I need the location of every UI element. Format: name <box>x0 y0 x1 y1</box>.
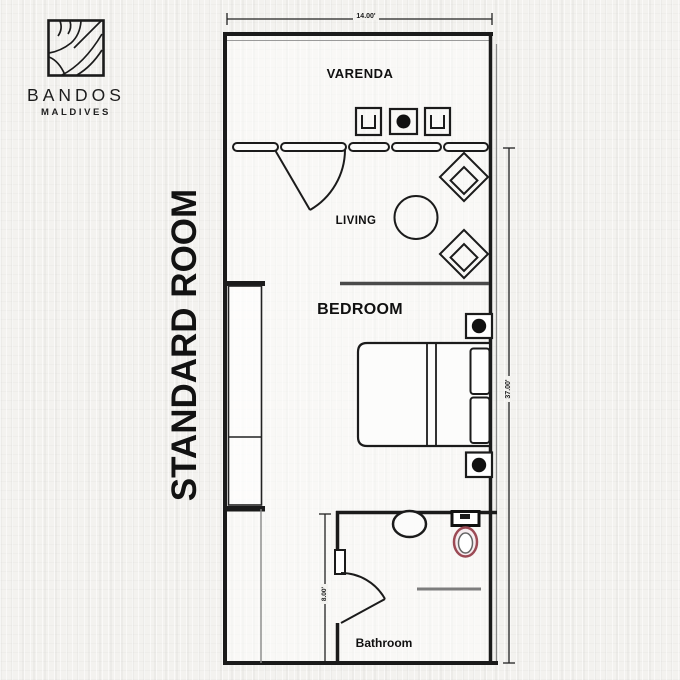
room-label-bedroom: BEDROOM <box>300 301 420 319</box>
room-label-veranda: VARENDA <box>310 66 410 81</box>
pillow-icon <box>471 398 490 444</box>
toilet-icon <box>452 512 479 557</box>
nightstand-lamp-icon <box>466 453 492 478</box>
room-label-living: LIVING <box>306 215 406 227</box>
wardrobe-icon <box>229 286 262 505</box>
sink-icon <box>393 511 426 537</box>
dimension-bathroom-label: 8.00' <box>317 564 333 624</box>
bedroom-wall-stub <box>225 506 265 512</box>
dimension-width-label: 14.00' <box>336 13 396 20</box>
nightstand-lamp-icon <box>466 314 492 338</box>
pillow-icon <box>471 349 490 395</box>
dimension-depth-label: 37.00' <box>501 359 517 419</box>
door-jamb <box>335 550 345 574</box>
floorplan-drawing <box>0 0 680 680</box>
room-label-bathroom: Bathroom <box>334 636 434 650</box>
double-bed-icon <box>358 343 490 446</box>
floorplan-page: BANDOS MALDIVES STANDARD ROOM <box>0 0 680 680</box>
window-pane-icon <box>233 143 488 151</box>
